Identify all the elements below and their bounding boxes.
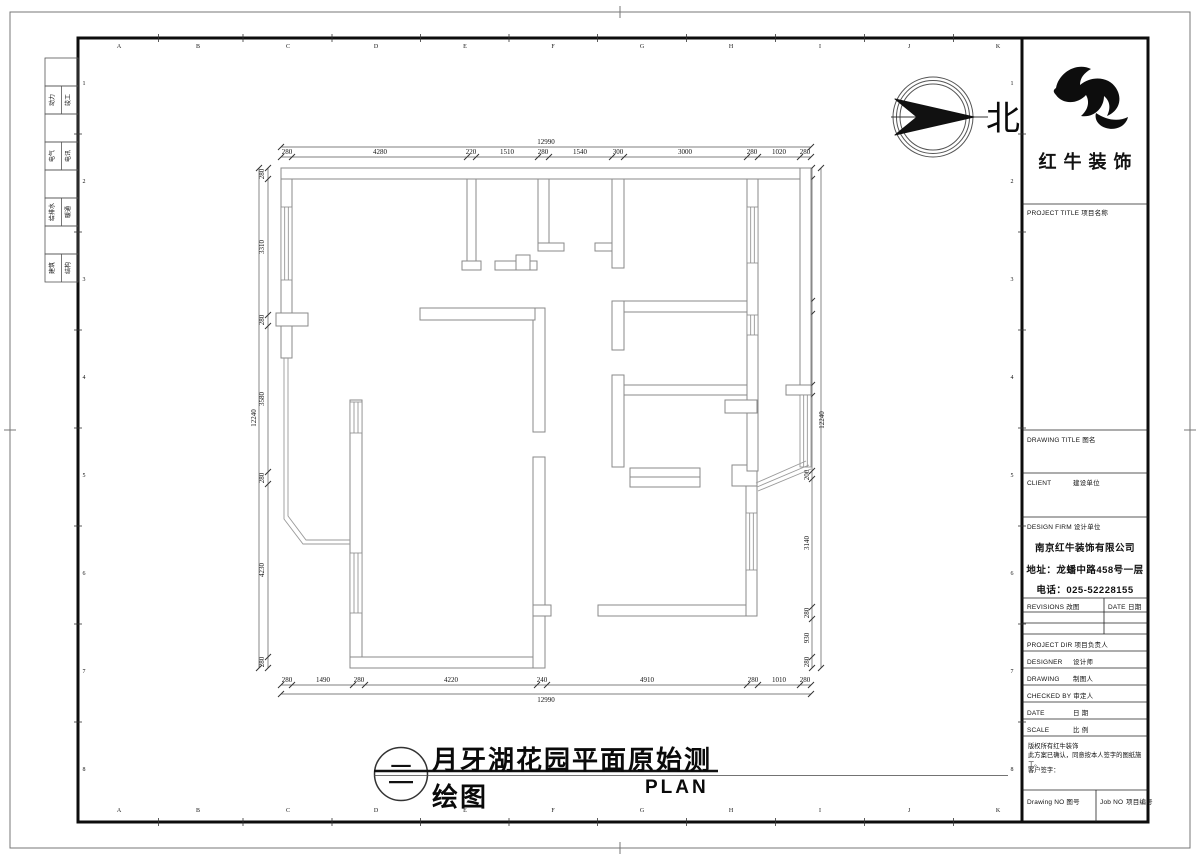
firm-phone: 电话：025-52228155: [1022, 582, 1148, 596]
dim-label: 1020: [772, 148, 787, 156]
grid-letter: A: [117, 808, 122, 814]
dim-label: 4280: [373, 148, 388, 156]
tb-checked-by: CHECKED BY 审定人: [1027, 690, 1145, 700]
dim-label: 280: [538, 148, 549, 156]
signature-label: 竣工: [64, 94, 72, 106]
grid-letter: J: [908, 44, 911, 50]
grid-letter: C: [286, 808, 290, 814]
grid-letter: K: [996, 808, 1001, 814]
grid-number: 7: [83, 669, 86, 675]
grid-letter: B: [196, 44, 200, 50]
dim-label: 3140: [803, 536, 811, 551]
dim-label: 280: [803, 607, 811, 618]
grid-number: 5: [83, 473, 86, 479]
dim-label: 280: [282, 148, 293, 156]
cad-drawing-canvas: AABBCCDDEEFFGGHHIIJJKK1122334455667788 动…: [0, 0, 1200, 860]
dim-overall-label: 12240: [250, 409, 258, 427]
dim-label: 4230: [258, 563, 266, 578]
signature-label: 电讯: [64, 150, 72, 162]
tb-date-row: DATE 日 期: [1027, 707, 1145, 717]
dim-label: 280: [800, 676, 811, 684]
dim-label: 4220: [444, 676, 459, 684]
grid-letter: F: [551, 44, 555, 50]
grid-letter: C: [286, 44, 290, 50]
signature-label: 电气: [48, 150, 56, 162]
brand-name: 红牛装饰: [1022, 148, 1148, 174]
grid-number: 4: [1011, 375, 1014, 381]
grid-number: 4: [83, 375, 86, 381]
grid-letter: A: [117, 44, 122, 50]
tb-designer: DESIGNER 设计师: [1027, 656, 1145, 666]
grid-letter: H: [729, 44, 734, 50]
signature-cell: [45, 170, 78, 198]
north-compass: 北: [891, 77, 1020, 157]
dim-label: 280: [258, 472, 266, 483]
grid-letter: G: [640, 44, 645, 50]
dim-label: 1490: [316, 676, 331, 684]
grid-letter: D: [374, 44, 379, 50]
signature-label: 给排水: [48, 203, 56, 221]
dim-label: 280: [747, 148, 758, 156]
signature-cell: [45, 114, 78, 142]
dim-label: 1540: [573, 148, 588, 156]
signature-cell: [45, 226, 78, 254]
tb-date-header: DATE 日期: [1108, 601, 1146, 611]
brand-logo-icon: [1054, 67, 1128, 129]
dim-label: 280: [800, 148, 811, 156]
dim-label: 280: [258, 656, 266, 667]
signature-label: 建筑: [48, 262, 56, 274]
grid-number: 8: [83, 767, 86, 773]
tb-design-firm: DESIGN FIRM 设计单位: [1027, 521, 1145, 531]
dim-label: 3580: [258, 392, 266, 407]
grid-letter: I: [819, 44, 821, 50]
sheet-title-en: PLAN: [645, 777, 709, 799]
signature-strip: 动力竣工电气电讯给排水暖通建筑结构: [45, 58, 78, 282]
tb-scale-row: SCALE 比 例: [1027, 724, 1145, 734]
dim-overall-label: 12990: [537, 696, 555, 704]
dim-overall-label: 12240: [818, 411, 826, 429]
tb-job-no: Job NO 项目编号: [1100, 796, 1146, 806]
tb-note-1: 版权所有红牛装饰: [1028, 741, 1144, 750]
grid-letter: D: [374, 808, 379, 814]
north-label: 北: [986, 101, 1020, 138]
grid-number: 8: [1011, 767, 1014, 773]
dim-label: 3000: [678, 148, 693, 156]
dim-label: 280: [282, 676, 293, 684]
tb-project-dir: PROJECT DIR 项目负责人: [1027, 639, 1145, 649]
grid-number: 2: [1011, 179, 1014, 185]
grid-number: 6: [1011, 571, 1014, 577]
dim-label: 240: [537, 676, 548, 684]
tb-revisions: REVISIONS 改图: [1027, 601, 1101, 611]
dim-label: 1010: [772, 676, 787, 684]
dim-label: 280: [258, 314, 266, 325]
grid-letter: I: [819, 808, 821, 814]
tb-note-3: 客户签字：: [1028, 765, 1144, 774]
firm-address: 地址：龙蟠中路458号一层: [1022, 562, 1148, 576]
grid-letter: E: [463, 44, 467, 50]
grid-letter: B: [196, 808, 200, 814]
dim-label: 4910: [640, 676, 655, 684]
dim-label: 220: [466, 148, 477, 156]
grid-number: 2: [83, 179, 86, 185]
dim-label: 3310: [258, 240, 266, 255]
dim-label: 280: [748, 676, 759, 684]
tb-drawing-by: DRAWING 制图人: [1027, 673, 1145, 683]
grid-number: 1: [83, 81, 86, 87]
dim-label: 930: [803, 632, 811, 643]
firm-name: 南京红牛装饰有限公司: [1022, 540, 1148, 554]
tb-drawing-no: Drawing NO 图号: [1027, 796, 1093, 806]
dim-label: 280: [803, 656, 811, 667]
grid-number: 1: [1011, 81, 1014, 87]
grid-number: 3: [83, 277, 86, 283]
sheet-number-symbol: 二: [388, 760, 415, 790]
grid-references: AABBCCDDEEFFGGHHIIJJKK1122334455667788: [74, 34, 1026, 826]
signature-label: 动力: [48, 94, 56, 106]
grid-number: 5: [1011, 473, 1014, 479]
tb-client: CLIENT 建设单位: [1027, 477, 1145, 487]
signature-label: 结构: [64, 262, 72, 274]
drawing-sheet: AABBCCDDEEFFGGHHIIJJKK1122334455667788 动…: [0, 0, 1200, 860]
signature-label: 暖通: [64, 206, 72, 218]
dim-overall-label: 12990: [537, 138, 555, 146]
signature-cell: [45, 58, 78, 86]
tb-project-title: PROJECT TITLE 项目名称: [1027, 207, 1145, 217]
dim-label: 280: [258, 168, 266, 179]
grid-number: 3: [1011, 277, 1014, 283]
dim-label: 280: [354, 676, 365, 684]
tb-drawing-title: DRAWING TITLE 图名: [1027, 434, 1145, 444]
grid-number: 7: [1011, 669, 1014, 675]
dim-label: 300: [613, 148, 624, 156]
grid-number: 6: [83, 571, 86, 577]
dim-label: 1510: [500, 148, 515, 156]
grid-letter: K: [996, 44, 1001, 50]
grid-letter: J: [908, 808, 911, 814]
